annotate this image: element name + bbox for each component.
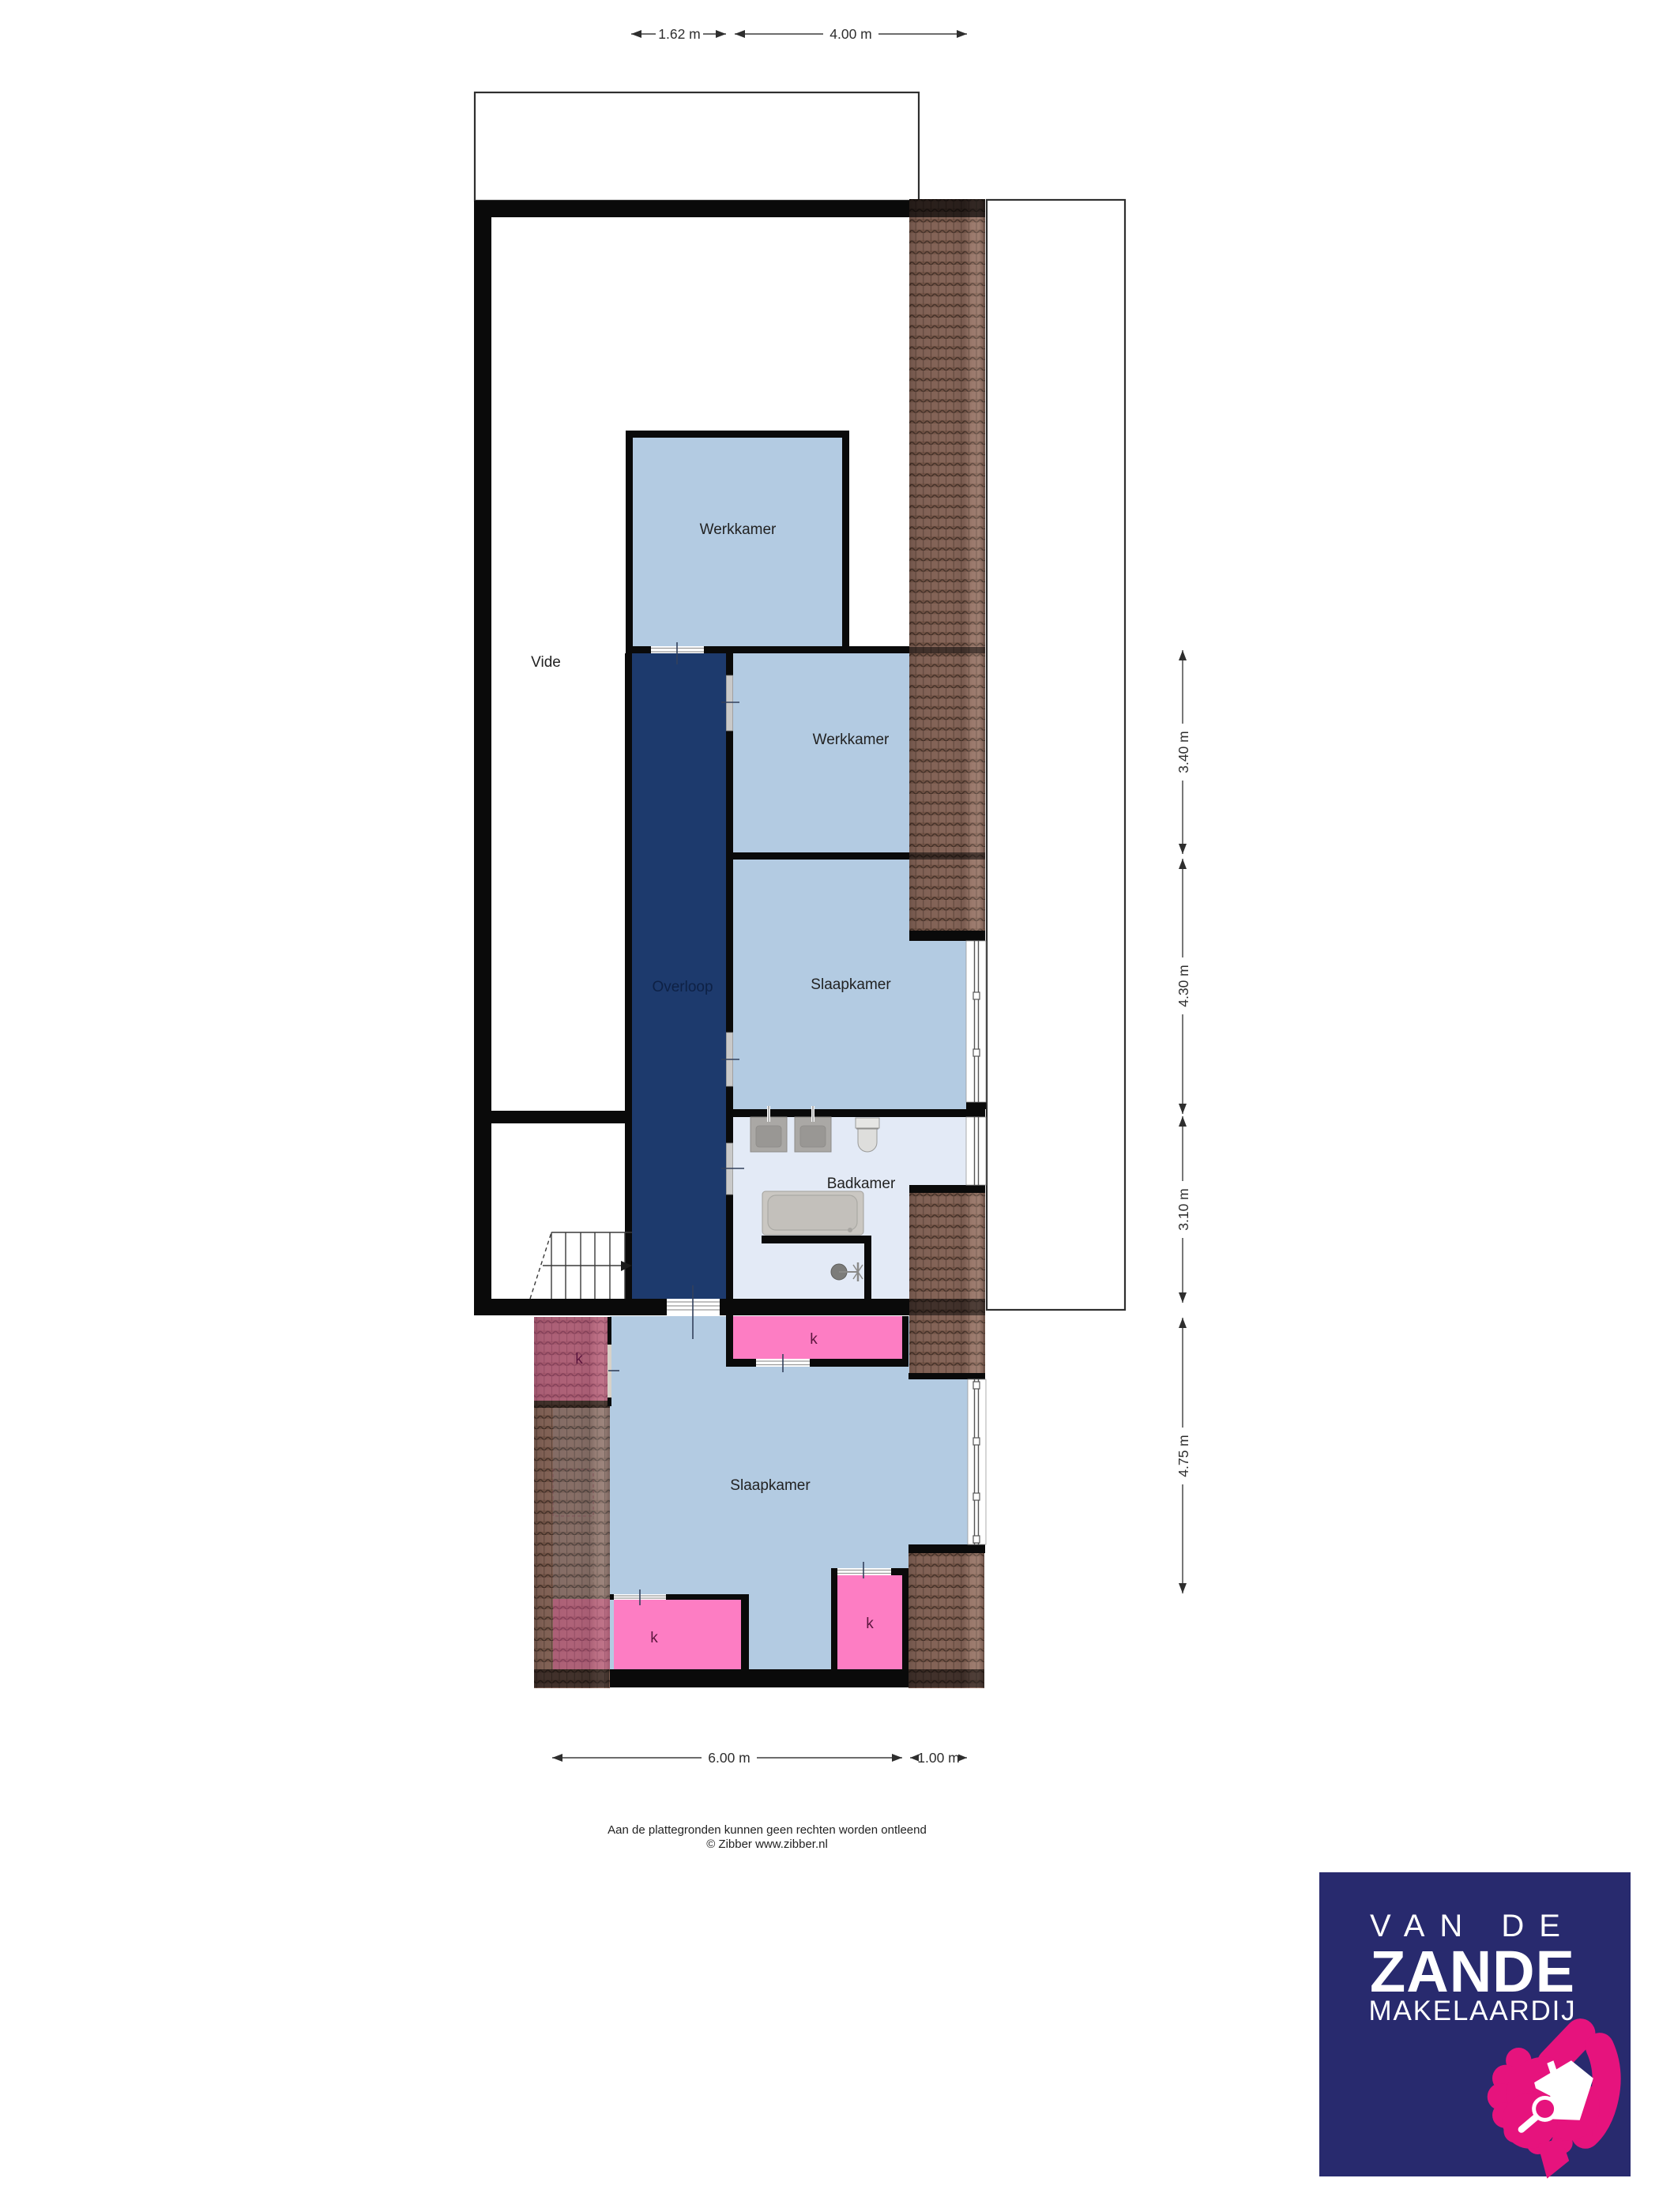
svg-text:4.00 m: 4.00 m (829, 26, 872, 42)
svg-text:© Zibber www.zibber.nl: © Zibber www.zibber.nl (706, 1838, 828, 1851)
svg-text:3.40 m: 3.40 m (1176, 731, 1191, 773)
svg-text:Werkkamer: Werkkamer (700, 521, 777, 538)
svg-text:Slaapkamer: Slaapkamer (730, 1477, 811, 1494)
svg-text:Vide: Vide (531, 654, 561, 671)
svg-text:3.10 m: 3.10 m (1176, 1188, 1191, 1231)
svg-text:4.75 m: 4.75 m (1176, 1435, 1191, 1477)
svg-text:MAKELAARDIJ: MAKELAARDIJ (1369, 1996, 1577, 2026)
svg-text:k: k (866, 1616, 874, 1632)
svg-text:k: k (650, 1630, 658, 1646)
svg-text:ZANDE: ZANDE (1370, 1939, 1575, 2004)
svg-text:k: k (810, 1331, 818, 1348)
svg-text:1.62 m: 1.62 m (658, 26, 701, 42)
svg-text:Aan de plattegronden kunnen ge: Aan de plattegronden kunnen geen rechten… (608, 1823, 927, 1837)
svg-text:1.00 m: 1.00 m (917, 1750, 960, 1766)
svg-text:Slaapkamer: Slaapkamer (811, 976, 891, 993)
svg-text:Overloop: Overloop (652, 979, 713, 995)
svg-text:Werkkamer: Werkkamer (813, 732, 890, 748)
svg-text:4.30 m: 4.30 m (1176, 965, 1191, 1007)
svg-text:Badkamer: Badkamer (827, 1176, 896, 1192)
svg-text:k: k (575, 1351, 583, 1367)
svg-text:6.00 m: 6.00 m (708, 1750, 750, 1766)
